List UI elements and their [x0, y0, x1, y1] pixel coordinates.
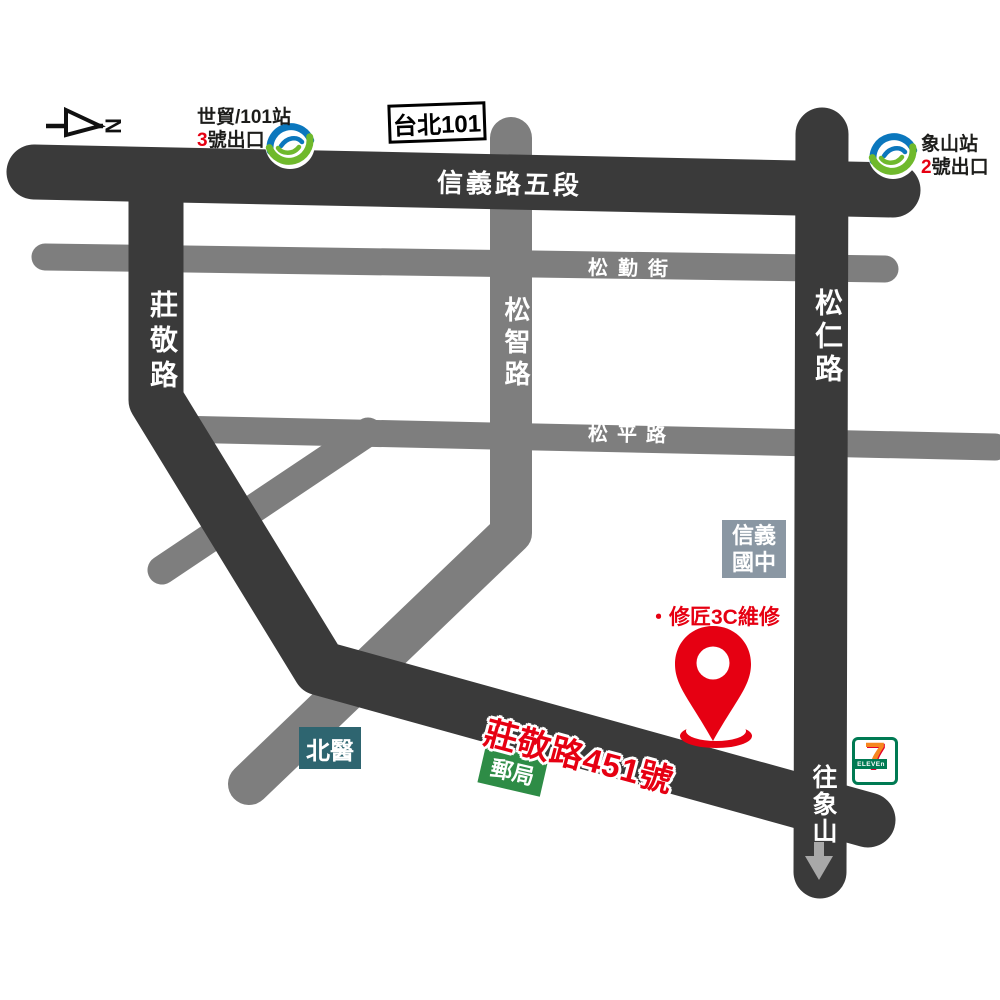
station-name: 世貿/101站: [197, 106, 291, 129]
station-label-xiangshan: 象山站 2號出口: [921, 133, 989, 179]
road-label-songren-rd: 松仁路: [807, 288, 847, 387]
school-line1: 信義: [732, 522, 776, 549]
exit-suffix: 號出口: [932, 157, 989, 178]
store-location-map: N 世貿/101站 3號出口: [0, 0, 1000, 1000]
road-network-canvas: N: [0, 0, 1000, 1000]
north-arrow-icon: N: [46, 110, 126, 135]
metro-logo-icon: [868, 129, 918, 179]
road-label-songqin-st: 松勤街: [588, 251, 678, 281]
school-line2: 國中: [732, 549, 776, 576]
seven-word: ELEVEn: [855, 759, 887, 769]
location-pin-icon: [675, 626, 756, 748]
road-songren-road: [820, 134, 822, 872]
road-label-xinyi-rd-5: 信義路五段: [437, 162, 583, 202]
exit-number: 3: [197, 130, 208, 151]
road-songping-road: [173, 429, 995, 447]
road-label-toward-xiangshan: 往象山: [805, 764, 841, 845]
station-exit: 2號出口: [921, 156, 989, 179]
station-label-taipei101: 世貿/101站 3號出口: [197, 106, 291, 152]
shop-label-repair: ・修匠3C維修: [648, 601, 780, 631]
station-exit: 3號出口: [197, 129, 291, 152]
road-label-zhuangjing-rd: 莊敬路: [142, 290, 182, 395]
seven-eleven-logo-icon: 7 ELEVEn: [852, 737, 898, 785]
seven-eleven-inner: 7 ELEVEn: [855, 740, 895, 782]
landmark-taipei-medical: 北醫: [299, 727, 361, 769]
landmark-taipei101: 台北101: [387, 101, 486, 143]
station-name: 象山站: [921, 133, 989, 156]
north-label: N: [101, 118, 126, 134]
exit-number: 2: [921, 157, 932, 178]
road-label-songping-rd: 松平路: [588, 417, 675, 448]
landmark-xinyi-junior-high: 信義 國中: [722, 520, 786, 578]
exit-suffix: 號出口: [208, 130, 265, 151]
road-label-songzhi-rd: 松智路: [498, 296, 535, 392]
